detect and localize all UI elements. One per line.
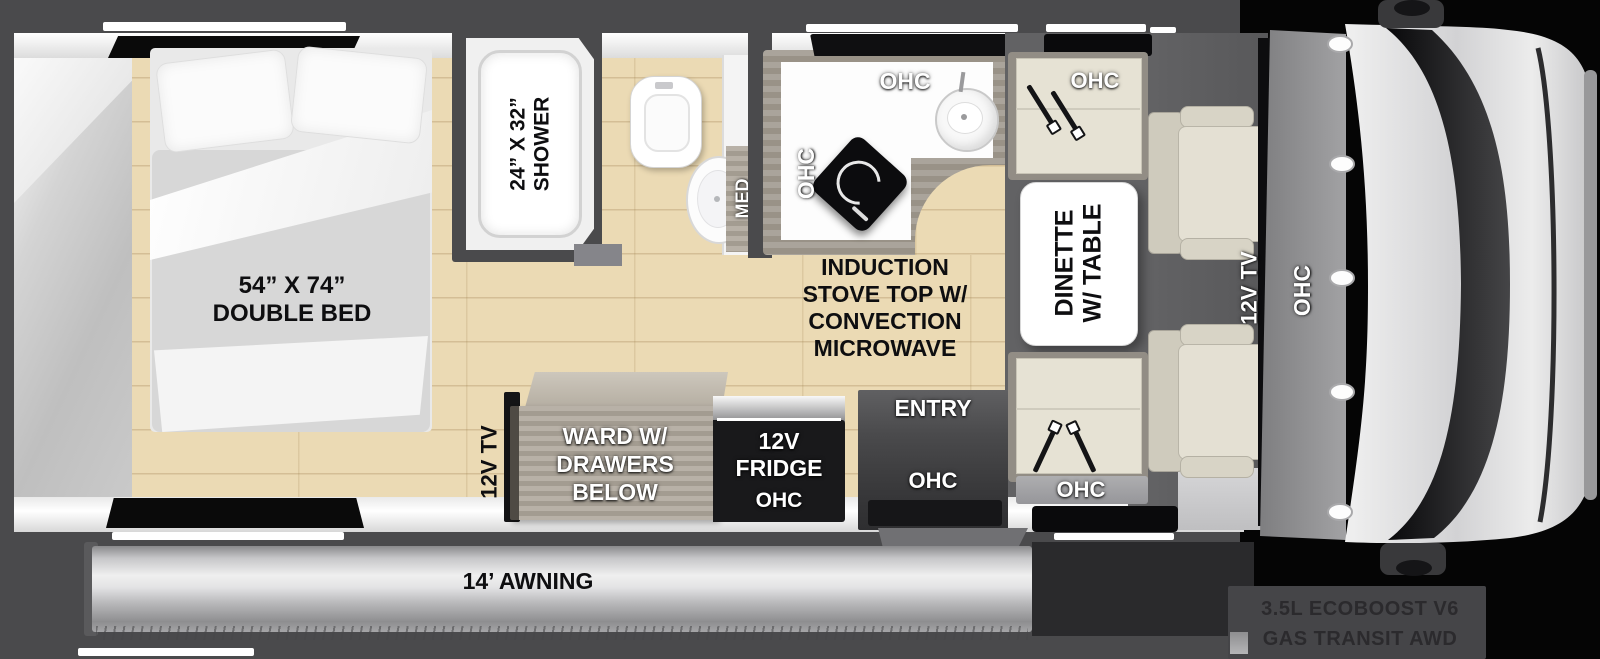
window-stripe bbox=[806, 24, 1018, 32]
dinette-window-bottom bbox=[1032, 506, 1178, 532]
window-stripe bbox=[103, 22, 346, 31]
entry-label: ENTRY bbox=[858, 394, 1008, 422]
shower-step bbox=[574, 244, 622, 266]
window-stripe bbox=[78, 648, 254, 656]
cooktop-control-bar bbox=[851, 206, 869, 222]
stove-label: INDUCTION STOVE TOP W/ CONVECTION MICROW… bbox=[788, 252, 982, 364]
undercab-storage bbox=[1032, 542, 1254, 636]
dinette-ohc-front-label: OHC bbox=[1050, 68, 1140, 94]
window-stripe bbox=[1054, 533, 1174, 540]
dinette-seat-rear-cushion bbox=[1016, 358, 1142, 474]
dome-light bbox=[1328, 36, 1352, 52]
kitchen-sink-drain bbox=[961, 114, 967, 120]
dinette-ohc-rear-label: OHC bbox=[1036, 477, 1126, 503]
side-mirror-glass bbox=[1394, 0, 1430, 16]
pillow bbox=[290, 45, 428, 144]
dome-light bbox=[1328, 504, 1352, 520]
dinette-seat-front-seam bbox=[1016, 108, 1140, 110]
fridge-trim-line bbox=[717, 418, 841, 421]
side-mirror-glass bbox=[1396, 560, 1432, 576]
awning-arm-hatch bbox=[96, 626, 1028, 640]
kitchen-ohc-side-label: OHC bbox=[772, 138, 842, 208]
window-stripe bbox=[112, 532, 344, 540]
pillow bbox=[155, 48, 295, 153]
toilet-seat bbox=[644, 94, 690, 152]
window-stripe bbox=[1046, 24, 1146, 32]
bed-label: 54” X 74” DOUBLE BED bbox=[192, 272, 392, 328]
dinette-seat-rear-seam bbox=[1016, 408, 1140, 410]
fridge-label: 12V FRIDGE bbox=[713, 424, 845, 486]
bedroom-window-bottom bbox=[106, 498, 364, 528]
cab-ohc-label: OHC bbox=[1268, 248, 1338, 332]
front-bumper bbox=[1584, 70, 1597, 500]
entry-step bbox=[878, 528, 1028, 546]
rv-floorplan-diagram: 54” X 74” DOUBLE BED 24” X 32” SHOWER ME… bbox=[0, 0, 1600, 659]
entry-ohc-label: OHC bbox=[858, 468, 1008, 494]
kitchen-window bbox=[810, 34, 1032, 56]
kitchen-ohc-top-label: OHC bbox=[860, 68, 950, 94]
wardrobe-label: WARD W/ DRAWERS BELOW bbox=[512, 414, 718, 514]
toilet-flush-button bbox=[655, 82, 673, 89]
entry-mat bbox=[868, 500, 1002, 526]
dinette-table-label: DINETTE W/ TABLE bbox=[1008, 193, 1148, 333]
dome-light bbox=[1330, 384, 1354, 400]
fridge-ohc-label: OHC bbox=[713, 488, 845, 514]
dome-light bbox=[1330, 156, 1354, 172]
shower-label: 24” X 32” SHOWER bbox=[460, 74, 600, 214]
awning-label: 14’ AWNING bbox=[428, 566, 628, 596]
wardrobe-top bbox=[518, 372, 728, 410]
chassis-label: 3.5L ECOBOOST V6 GAS TRANSIT AWD bbox=[1236, 592, 1484, 656]
